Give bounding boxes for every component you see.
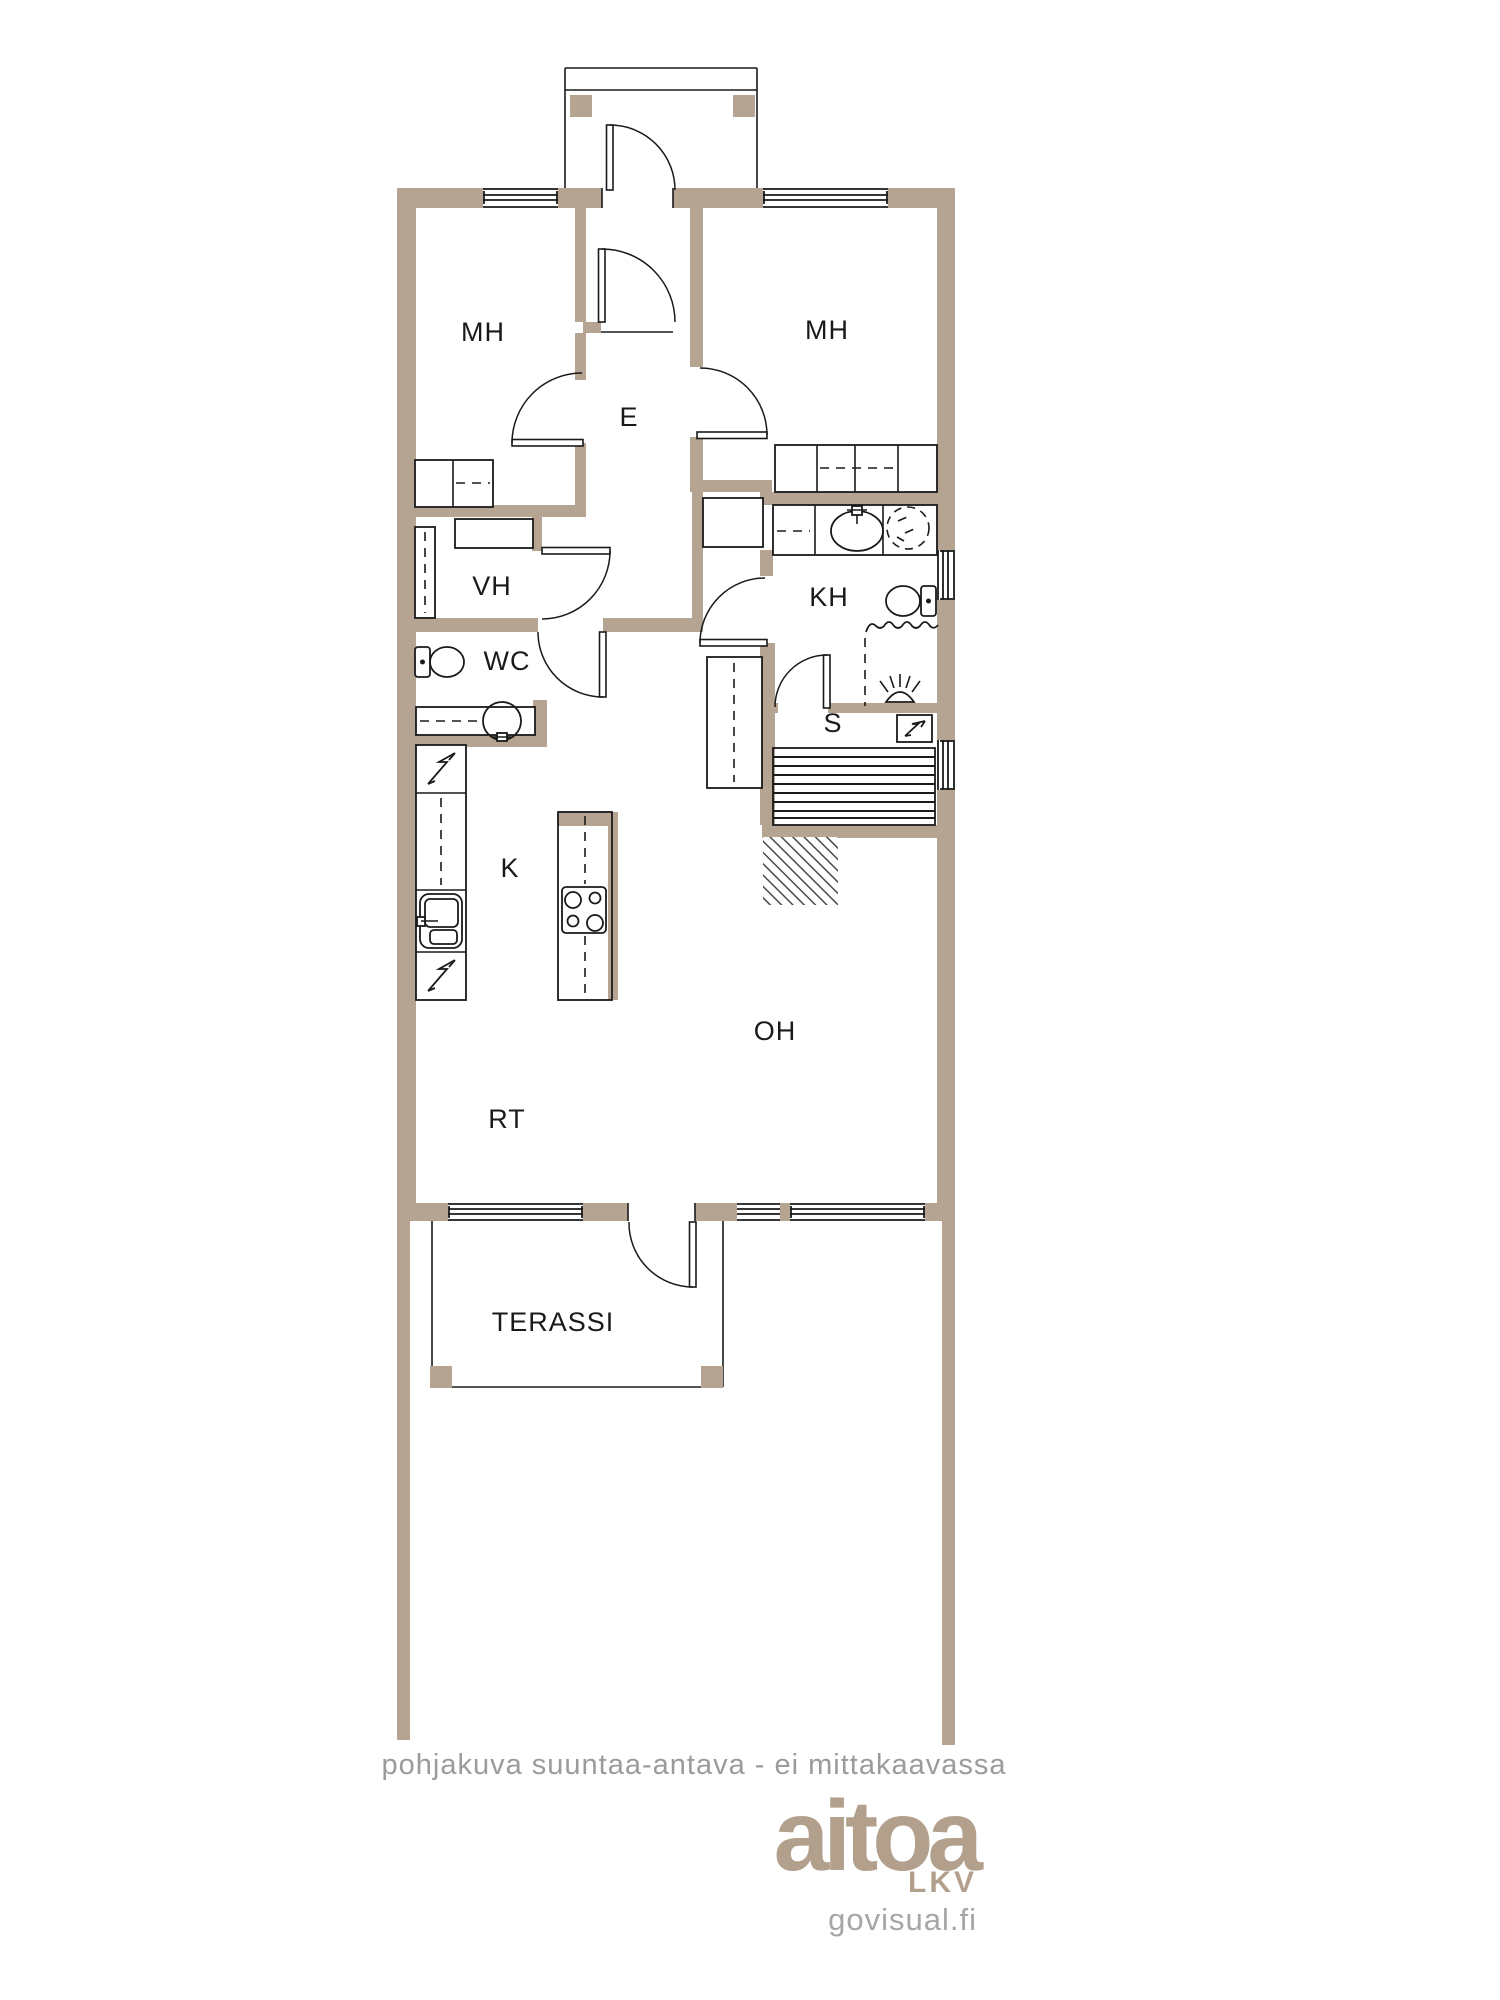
room-label-mh-right: MH [805,315,849,345]
terrace [430,1221,723,1388]
utility-cabinet-icon [707,657,762,788]
window-top-right [763,188,888,208]
wc-vanity [416,702,535,741]
sauna-bench-icon [773,748,935,825]
porch-post-right [733,95,755,117]
terrace-post-left [430,1366,452,1388]
doors [512,125,830,1287]
laundry-counter [773,505,937,555]
room-label-e: E [619,402,638,432]
window-bottom-middle [737,1203,780,1221]
porch-post-left [570,95,592,117]
washing-machine-icon [887,507,929,549]
wc-door [538,632,606,697]
kitchen-island [558,812,612,1000]
room-label-rt: RT [488,1104,526,1134]
floorplan-page: MH MH E VH WC KH S K OH RT TERASSI pohja… [0,0,1500,2000]
room-label-s: S [823,708,842,738]
kitchen-counter [416,745,466,1000]
brand-website-link: govisual.fi [828,1902,977,1937]
room-label-oh: OH [754,1016,797,1046]
closet-door [542,548,610,620]
brand-logo: aitoa LKV govisual.fi [774,1780,985,1937]
floorplan-drawing: MH MH E VH WC KH S K OH RT TERASSI pohja… [0,0,1500,2000]
stove-icon [562,887,606,933]
window-right-kh [937,550,955,600]
chimney-hatch-block [763,837,838,905]
kitchen-island-wall-cap [558,812,618,826]
room-label-kh: KH [809,582,849,612]
window-bottom-right [790,1203,925,1221]
wardrobe-left-icon [415,460,493,507]
shower-area [865,622,938,706]
closet-shelves-icon [415,519,533,618]
disclaimer-note: pohjakuva suuntaa-antava - ei mittakaava… [382,1749,1007,1781]
terrace-door [628,1203,696,1287]
room-label-mh-left: MH [461,317,505,347]
sauna-heater-icon [897,715,932,742]
hall-cabinet-icon [703,498,763,547]
hallway-door [599,249,676,332]
front-door [602,125,675,208]
brand-logo-division: LKV [908,1866,977,1899]
bathroom-door [700,578,767,646]
shower-head-icon [880,674,920,702]
lot-boundary-lines [397,1221,955,1745]
shower-curtain-icon [866,622,938,632]
room-label-vh: VH [472,571,512,601]
window-bottom-left [448,1203,583,1221]
window-right-sauna [937,740,955,790]
wc-toilet-icon [415,647,464,677]
bedroom-right-door [697,368,767,439]
room-label-k: K [500,853,519,883]
terrace-post-right [701,1366,723,1388]
room-label-wc: WC [484,646,531,676]
sauna-door [775,655,830,708]
window-top-left [483,188,558,208]
lot-line-left [397,1221,410,1740]
entry-porch [565,68,757,188]
kh-toilet-icon [886,586,936,616]
lot-line-right [942,1221,955,1745]
bedroom-left-door [512,373,583,446]
kitchen-island-wall-side [608,826,618,1000]
wardrobe-right-icon [775,445,937,492]
room-label-terassi: TERASSI [492,1307,615,1337]
